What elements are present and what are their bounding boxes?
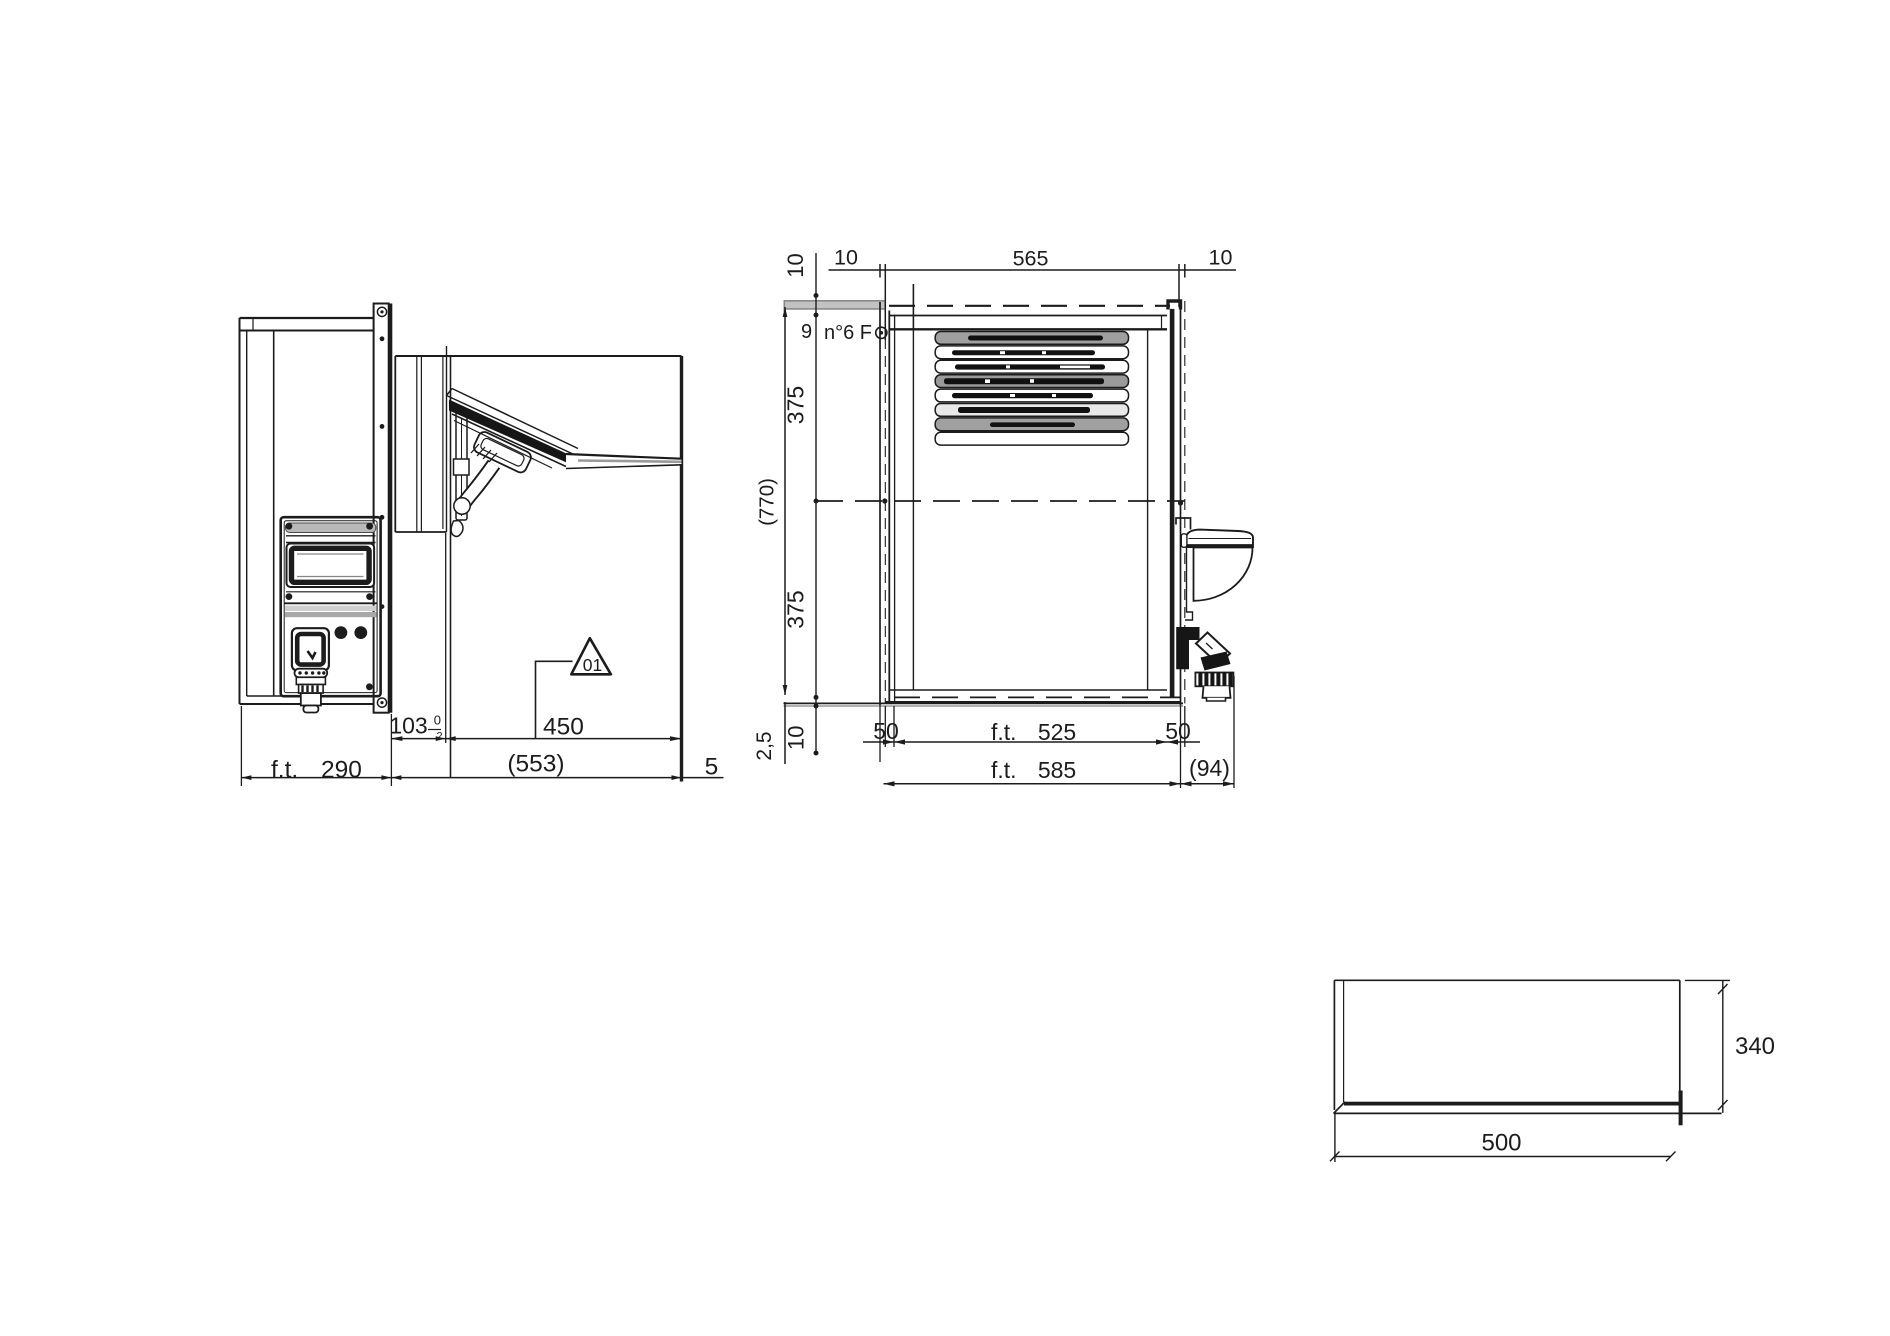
svg-text:290: 290 [321,757,362,784]
svg-text:01: 01 [583,655,602,675]
svg-text:2: 2 [437,731,443,743]
svg-text:50: 50 [1165,718,1191,744]
svg-text:450: 450 [543,714,584,741]
svg-text:585: 585 [1038,757,1076,783]
svg-text:500: 500 [1481,1130,1521,1157]
svg-text:525: 525 [1038,719,1076,745]
svg-text:(770): (770) [756,478,779,526]
svg-text:2,5: 2,5 [753,731,776,760]
svg-text:375: 375 [782,386,808,424]
svg-text:340: 340 [1735,1033,1775,1060]
svg-text:10: 10 [1209,246,1233,270]
svg-text:(553): (553) [507,751,564,778]
svg-text:10: 10 [834,246,858,270]
svg-text:0: 0 [434,713,441,728]
svg-text:50: 50 [873,718,899,744]
svg-text:10: 10 [783,253,808,277]
svg-text:n°6 F: n°6 F [824,322,872,344]
svg-text:375: 375 [782,590,808,628]
svg-text:(94): (94) [1189,755,1230,781]
svg-text:5: 5 [705,754,719,781]
svg-text:565: 565 [1013,247,1049,271]
svg-text:9: 9 [801,321,812,343]
svg-text:f.t.: f.t. [991,757,1017,783]
svg-text:10: 10 [783,726,808,750]
svg-text:103: 103 [389,713,427,739]
svg-text:f.t.: f.t. [991,719,1017,745]
svg-text:f.t.: f.t. [271,757,298,784]
